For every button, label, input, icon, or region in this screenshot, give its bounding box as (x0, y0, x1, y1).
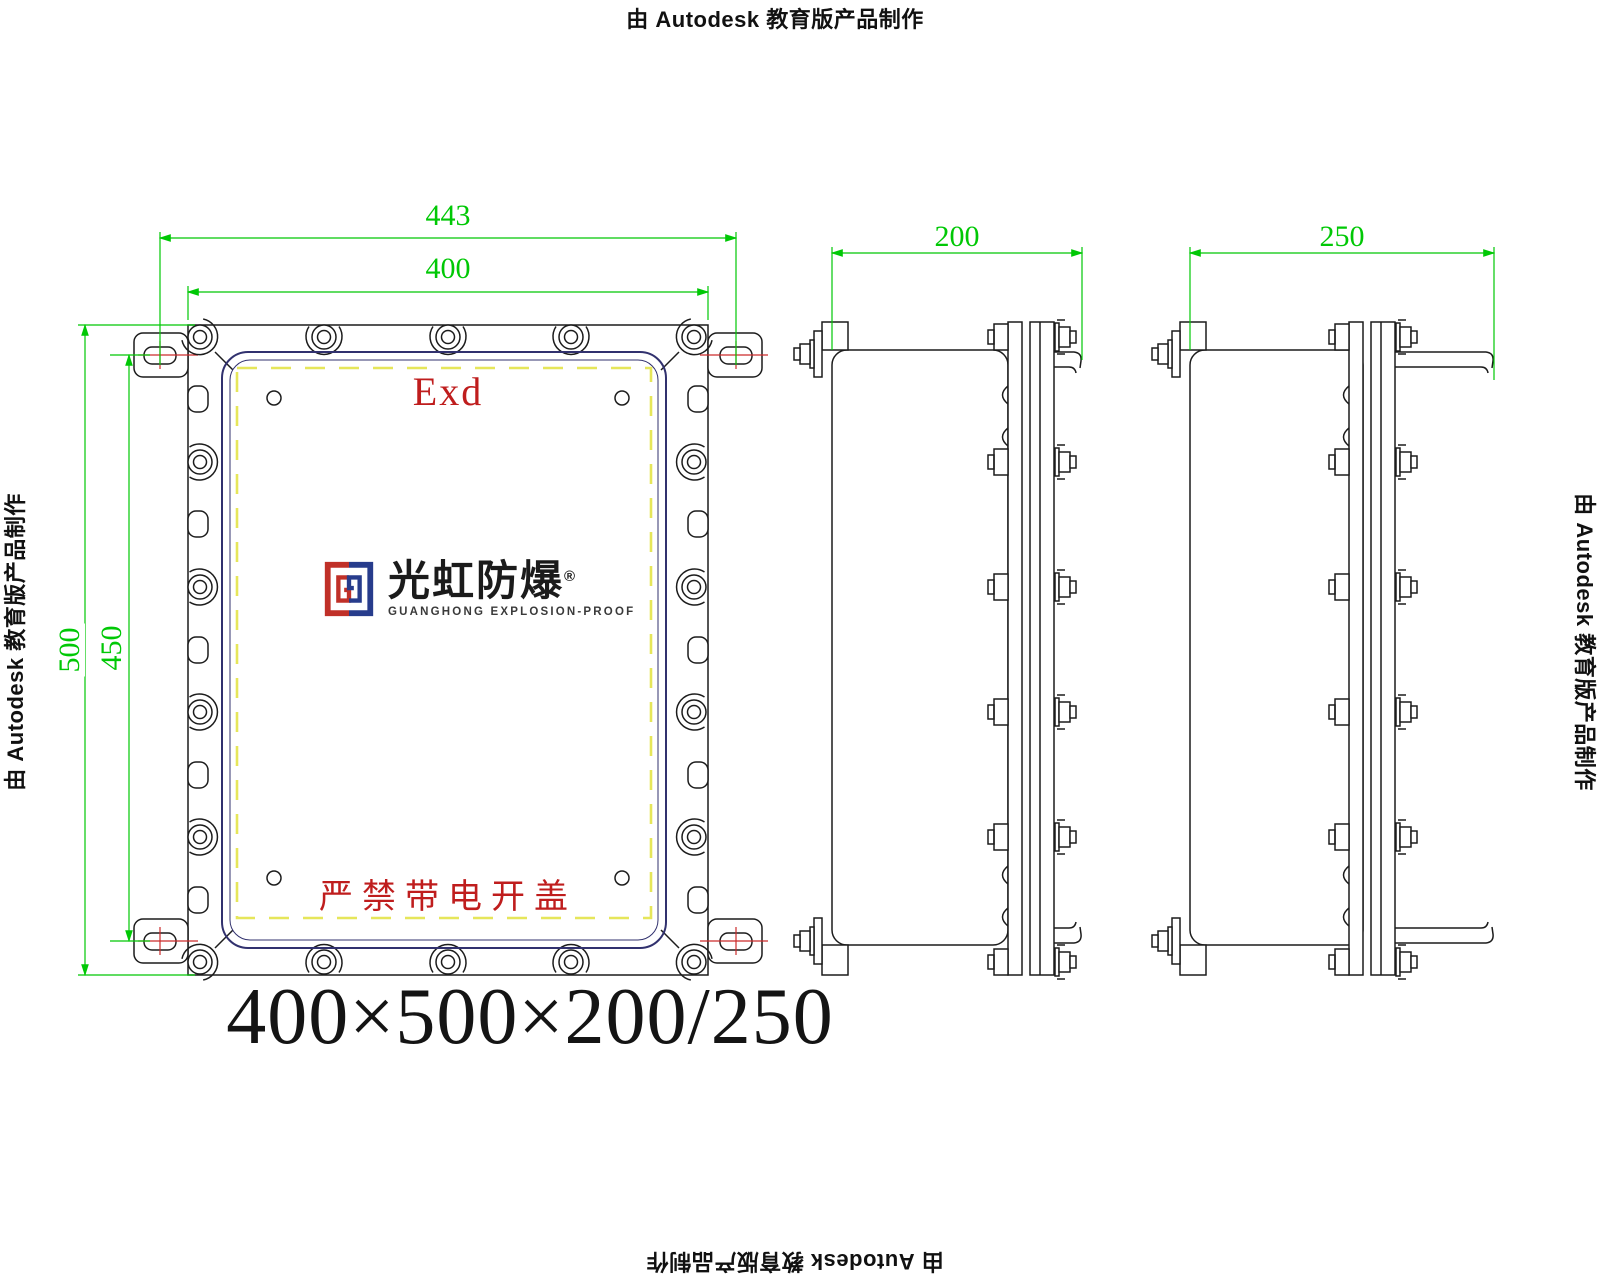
side-view-depth-200 (794, 320, 1081, 979)
dim-label-450: 450 (97, 622, 127, 675)
dim-label-250: 250 (1316, 222, 1369, 252)
dim-label-443: 443 (422, 201, 475, 231)
dim-label-400: 400 (422, 254, 475, 284)
logo-emblem-icon (320, 560, 378, 618)
dim-label-200: 200 (931, 222, 984, 252)
size-label: 400×500×200/250 (170, 972, 890, 1063)
brand-logo: 光虹防爆® GUANGHONG EXPLOSION-PROOF (320, 560, 635, 618)
side-view-depth-250 (1152, 320, 1493, 979)
logo-tagline: GUANGHONG EXPLOSION-PROOF (388, 606, 635, 618)
cad-geometry (0, 0, 1600, 1280)
cad-drawing-canvas: 由 Autodesk 教育版产品制作 由 Autodesk 教育版产品制作 由 … (0, 0, 1600, 1280)
exd-marking: Exd (413, 372, 483, 412)
warning-label: 严禁带电开盖 (319, 881, 577, 915)
registered-mark: ® (564, 568, 575, 585)
dim-label-500: 500 (55, 624, 85, 677)
logo-name: 光虹防爆® (388, 560, 635, 602)
